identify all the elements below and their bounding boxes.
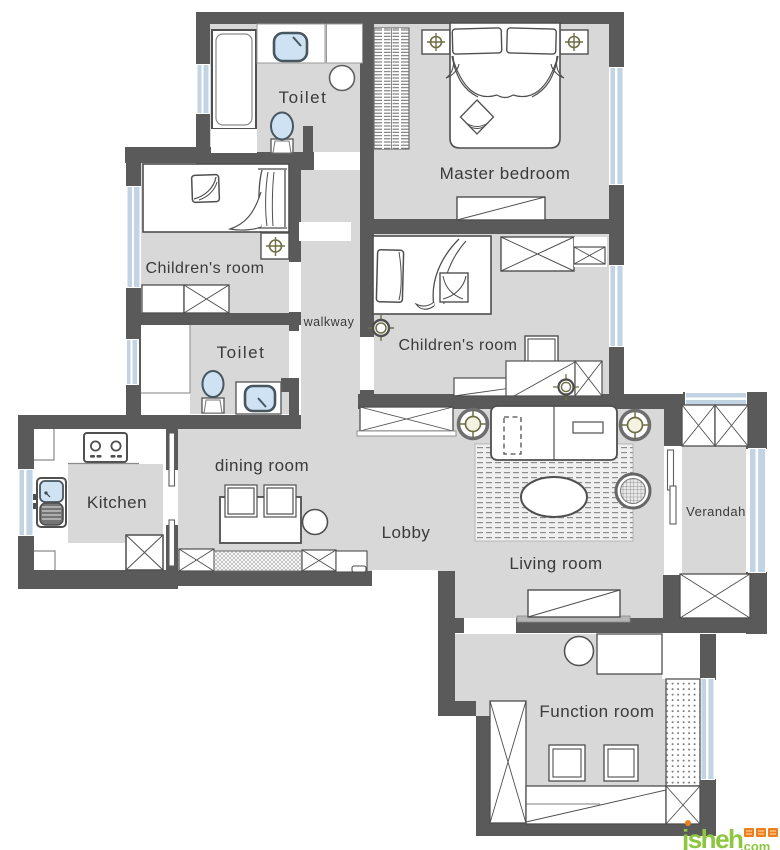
svg-text:Children's room: Children's room	[398, 337, 517, 354]
svg-text:Lobby: Lobby	[382, 523, 431, 542]
svg-text:jsheh: jsheh	[681, 824, 743, 850]
svg-text:Living room: Living room	[509, 554, 602, 573]
svg-text:Function room: Function room	[539, 702, 654, 721]
svg-text:dining room: dining room	[215, 456, 309, 475]
svg-text:walkway: walkway	[303, 315, 355, 329]
svg-text:Kitchen: Kitchen	[87, 493, 147, 512]
svg-text:Master bedroom: Master bedroom	[440, 164, 571, 183]
svg-text:.com: .com	[740, 839, 770, 850]
svg-text:Toilet: Toilet	[217, 343, 266, 362]
svg-text:Verandah: Verandah	[686, 504, 746, 519]
svg-text:Toilet: Toilet	[279, 88, 328, 107]
svg-text:Children's room: Children's room	[145, 260, 264, 277]
